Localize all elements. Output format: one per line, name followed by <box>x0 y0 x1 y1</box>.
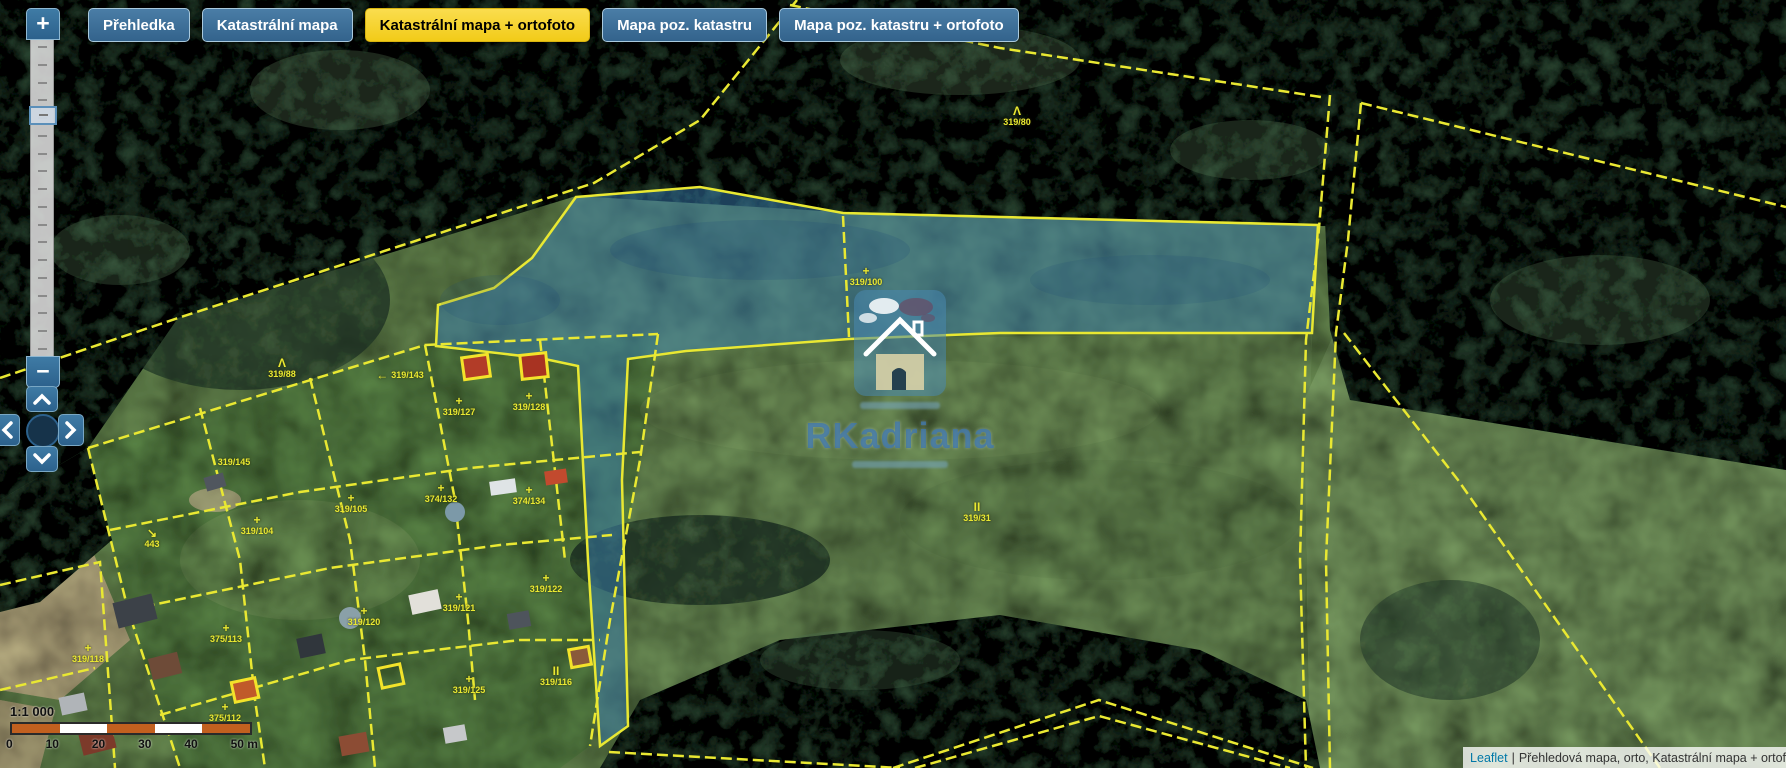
map-application: Λ319/80 +319/100 II319/31 Λ319/88 ←319/1… <box>0 0 1786 768</box>
tab-katastralni-mapa-ortofoto[interactable]: Katastrální mapa + ortofoto <box>365 8 590 42</box>
map-canvas[interactable] <box>0 0 1786 768</box>
tab-mapa-poz-katastru[interactable]: Mapa poz. katastru <box>602 8 767 42</box>
scale-bar-segments <box>10 722 252 735</box>
layer-tab-bar: Přehledka Katastrální mapa Katastrální m… <box>88 8 1019 42</box>
pan-right-button[interactable] <box>58 414 84 446</box>
leaflet-link[interactable]: Leaflet <box>1470 751 1508 765</box>
zoom-slider-knob[interactable] <box>29 106 57 125</box>
chevron-right-icon <box>65 421 77 439</box>
scale-bar: 1:1 000 01020304050 m <box>10 704 258 751</box>
attribution-bar: Leaflet | Přehledová mapa, orto, Katastr… <box>1463 747 1786 768</box>
pan-down-button[interactable] <box>26 446 58 472</box>
chevron-up-icon <box>33 393 51 405</box>
scale-tick-labels: 01020304050 m <box>6 737 258 751</box>
chevron-down-icon <box>33 453 51 465</box>
pan-control <box>0 384 92 476</box>
tab-prehledka[interactable]: Přehledka <box>88 8 190 42</box>
attribution-separator: | <box>1512 751 1515 765</box>
pan-center-button[interactable] <box>26 414 60 448</box>
zoom-control: + − <box>26 8 58 388</box>
attribution-layers: Přehledová mapa, orto, Katastrální mapa … <box>1519 751 1786 765</box>
zoom-in-button[interactable]: + <box>26 8 60 40</box>
tab-katastralni-mapa[interactable]: Katastrální mapa <box>202 8 353 42</box>
zoom-slider-track[interactable] <box>30 40 54 356</box>
chevron-left-icon <box>1 421 13 439</box>
pan-left-button[interactable] <box>0 414 20 446</box>
scale-ratio: 1:1 000 <box>10 704 258 719</box>
pan-up-button[interactable] <box>26 386 58 412</box>
tab-mapa-poz-katastru-ortofoto[interactable]: Mapa poz. katastru + ortofoto <box>779 8 1019 42</box>
